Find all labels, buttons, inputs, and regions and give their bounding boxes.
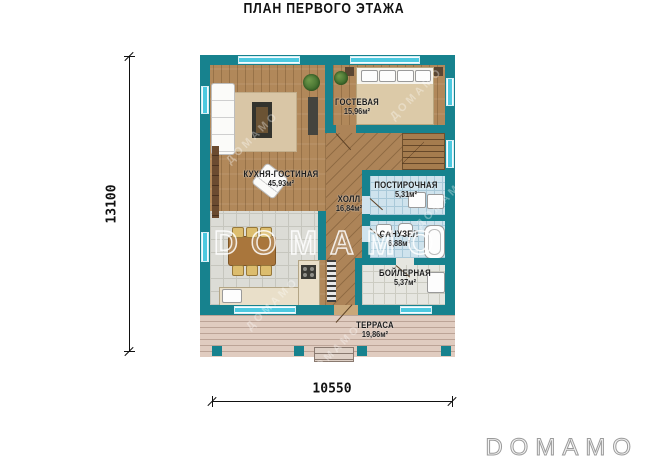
chair (246, 265, 258, 276)
fireplace-tv (308, 97, 318, 135)
bookshelf (212, 146, 219, 218)
window (201, 232, 209, 262)
chair (260, 265, 272, 276)
door-opening (336, 125, 356, 133)
room-label-hall: ХОЛЛ 16,84м² (336, 194, 362, 214)
plant-icon (334, 71, 348, 85)
dimension-vertical-value: 13100 (105, 184, 120, 223)
brand-logo: DOMAMO (485, 434, 638, 462)
sofa (211, 83, 235, 155)
stairs (402, 133, 445, 173)
plant-icon (303, 74, 320, 91)
terrace-post (294, 346, 304, 356)
stove (301, 265, 316, 279)
window (446, 78, 454, 106)
dimension-horizontal-value: 10550 (312, 382, 351, 397)
window (201, 86, 209, 114)
floor-plan-sheet: ПЛАН ПЕРВОГО ЭТАЖА (0, 0, 648, 470)
terrace-post (357, 346, 367, 356)
room-label-laundry: ПОСТИРОЧНАЯ 5,31м² (374, 180, 437, 200)
wall (325, 65, 333, 125)
floor-plan: КУХНЯ-ГОСТИНАЯ 45,93м² ГОСТЕВАЯ 15,96м² … (0, 0, 648, 470)
window (400, 306, 432, 314)
window (446, 140, 454, 168)
room-label-boiler: БОЙЛЕРНАЯ 5,37м² (379, 268, 431, 288)
room-label-guest: ГОСТЕВАЯ 15,96м² (335, 97, 379, 117)
wall (362, 170, 445, 176)
terrace-post (441, 346, 451, 356)
window (350, 56, 420, 64)
watermark-center: DOMAMO (214, 224, 446, 262)
kitchen-sink (222, 289, 242, 303)
radiator (327, 260, 336, 302)
window (238, 56, 300, 64)
wall (355, 258, 362, 305)
room-label-kitchen-living: КУХНЯ-ГОСТИНАЯ 45,93м² (244, 169, 319, 189)
terrace-post (212, 346, 222, 356)
chair (232, 265, 244, 276)
